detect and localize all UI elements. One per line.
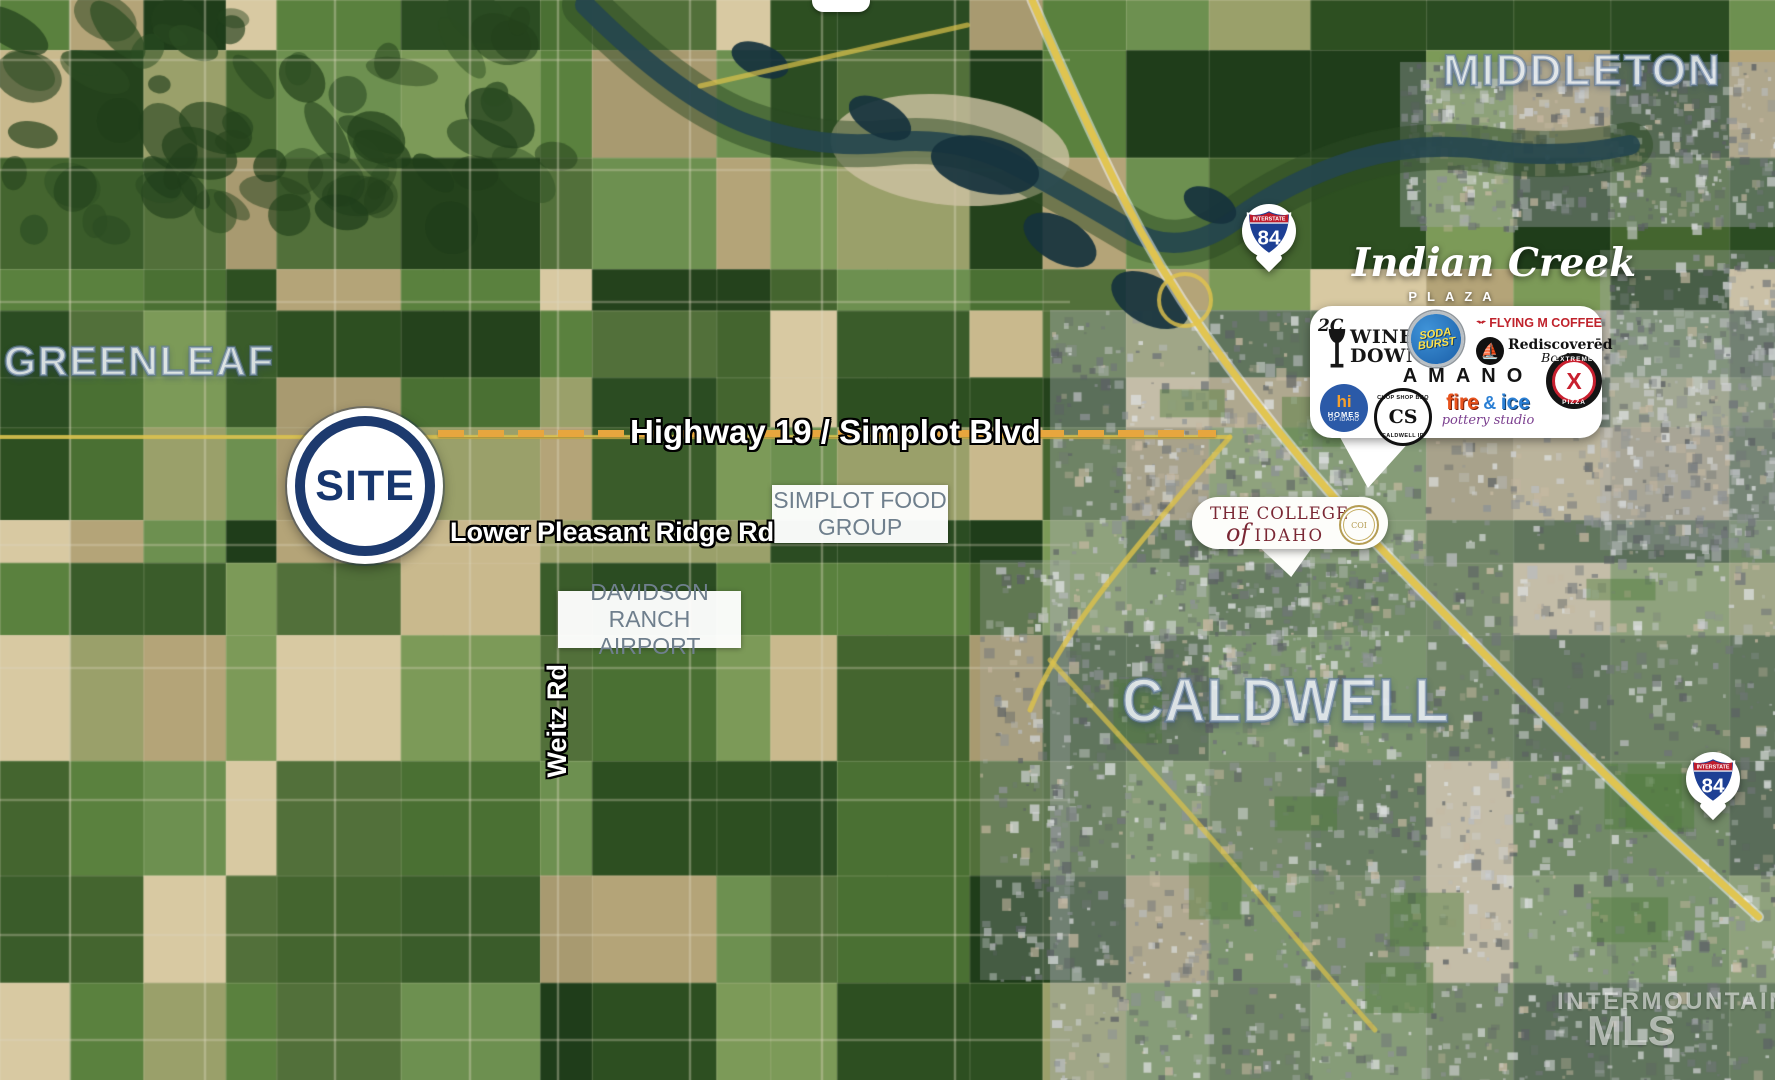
amano-logo: AMANO: [1398, 365, 1538, 388]
interstate-84-pin-north: INTERSTATE 84: [1241, 204, 1297, 288]
city-label-caldwell: CALDWELL: [1122, 665, 1450, 736]
davidson-line2: RANCH AIRPORT: [558, 606, 741, 660]
college-of-idaho-bubble: THE COLLEGE of IDAHO COI: [1192, 497, 1388, 549]
ship-icon: ⛵: [1476, 337, 1504, 365]
extreme-x: X: [1566, 368, 1581, 395]
watermark-line2: MLS: [1587, 1010, 1775, 1052]
interstate-84-shield-icon: INTERSTATE 84: [1246, 208, 1292, 256]
wine-glass-icon: [1326, 328, 1348, 374]
chop-shop-arc-top: CHOP SHOP BBQ: [1377, 395, 1429, 401]
shield-divider: [1250, 222, 1288, 223]
shield-divider: [1694, 770, 1732, 771]
wings-shape: [1476, 321, 1486, 324]
road-label-weitz: Weitz Rd: [542, 664, 573, 778]
extreme-x-badge: X: [1552, 359, 1596, 403]
indian-creek-plaza-title: Indian Creek: [1352, 240, 1558, 286]
college-idaho: IDAHO: [1254, 526, 1324, 545]
homes-line2: OF IDAHO: [1329, 418, 1360, 424]
simplot-line2: GROUP: [772, 514, 948, 541]
flying-m-label: FLYING M COFFEE: [1489, 316, 1602, 330]
aerial-site-map: MIDDLETON GREENLEAF CALDWELL Highway 19 …: [0, 0, 1775, 1080]
indian-creek-plaza-subtitle: PLAZA: [1352, 289, 1558, 304]
flying-m-coffee-logo: FLYING M COFFEE: [1476, 313, 1602, 332]
site-marker: SITE: [287, 408, 443, 564]
poi-box-davidson-ranch-airport: DAVIDSON RANCH AIRPORT: [558, 591, 741, 648]
shield-number: 84: [1257, 226, 1281, 249]
fire-word: fire: [1446, 391, 1479, 414]
cutoff-map-pin: [812, 0, 870, 12]
college-line2: of IDAHO: [1226, 519, 1324, 547]
city-label-greenleaf: GREENLEAF: [4, 338, 275, 385]
chop-shop-arc-bottom: CALDWELL ID: [1377, 433, 1429, 439]
college-of: of: [1226, 519, 1249, 547]
intermountain-mls-watermark: INTERMOUNTAIN MLS: [1557, 990, 1775, 1052]
fire-and-ice-logo: fire & ice pottery studio: [1430, 392, 1546, 427]
chop-shop-bbq-logo: CHOP SHOP BBQ CS CALDWELL ID: [1374, 388, 1432, 446]
flying-m-wings-icon: [1476, 313, 1486, 332]
extreme-bottom-text: PIZZA: [1546, 399, 1602, 406]
college-seal-icon: COI: [1339, 505, 1379, 545]
site-marker-ring: SITE: [295, 416, 435, 556]
shield-number: 84: [1701, 774, 1725, 797]
homes-of-idaho-logo: hi HOMES OF IDAHO: [1320, 384, 1368, 432]
road-label-highway19: Highway 19 / Simplot Blvd: [630, 413, 950, 451]
wine-glass-shape: [1329, 329, 1346, 368]
indian-creek-logo-card: 2C WINE DOWN SODA BURST FLYING M COFFEE …: [1310, 306, 1602, 438]
city-label-middleton: MIDDLETON: [1443, 46, 1722, 96]
extreme-pizza-logo: EXTREME X PIZZA: [1546, 353, 1602, 409]
fire-and-ice-wordmark: fire & ice: [1430, 392, 1546, 413]
shield-banner-text: INTERSTATE: [1253, 217, 1286, 223]
fire-and-ice-tagline: pottery studio: [1430, 414, 1546, 427]
poi-box-simplot-food-group: SIMPLOT FOOD GROUP: [772, 485, 948, 543]
shield-banner-text: INTERSTATE: [1697, 765, 1730, 771]
road-label-lower-pleasant-ridge: Lower Pleasant Ridge Rd: [450, 517, 718, 548]
davidson-line1: DAVIDSON: [558, 579, 741, 606]
ice-word: ice: [1501, 391, 1530, 414]
wine-down-logo: 2C WINE DOWN: [1320, 322, 1408, 378]
homes-hi: hi: [1336, 393, 1351, 410]
simplot-line1: SIMPLOT FOOD: [772, 487, 948, 514]
site-marker-label: SITE: [315, 462, 415, 511]
extreme-top-text: EXTREME: [1546, 356, 1602, 363]
chop-shop-monogram: CS: [1389, 406, 1418, 428]
interstate-84-shield-icon: INTERSTATE 84: [1690, 756, 1736, 804]
soda-burst-line2: BURST: [1417, 336, 1456, 352]
interstate-84-pin-south: INTERSTATE 84: [1685, 752, 1741, 836]
college-seal-text: COI: [1351, 521, 1367, 530]
ampersand: &: [1483, 393, 1496, 413]
